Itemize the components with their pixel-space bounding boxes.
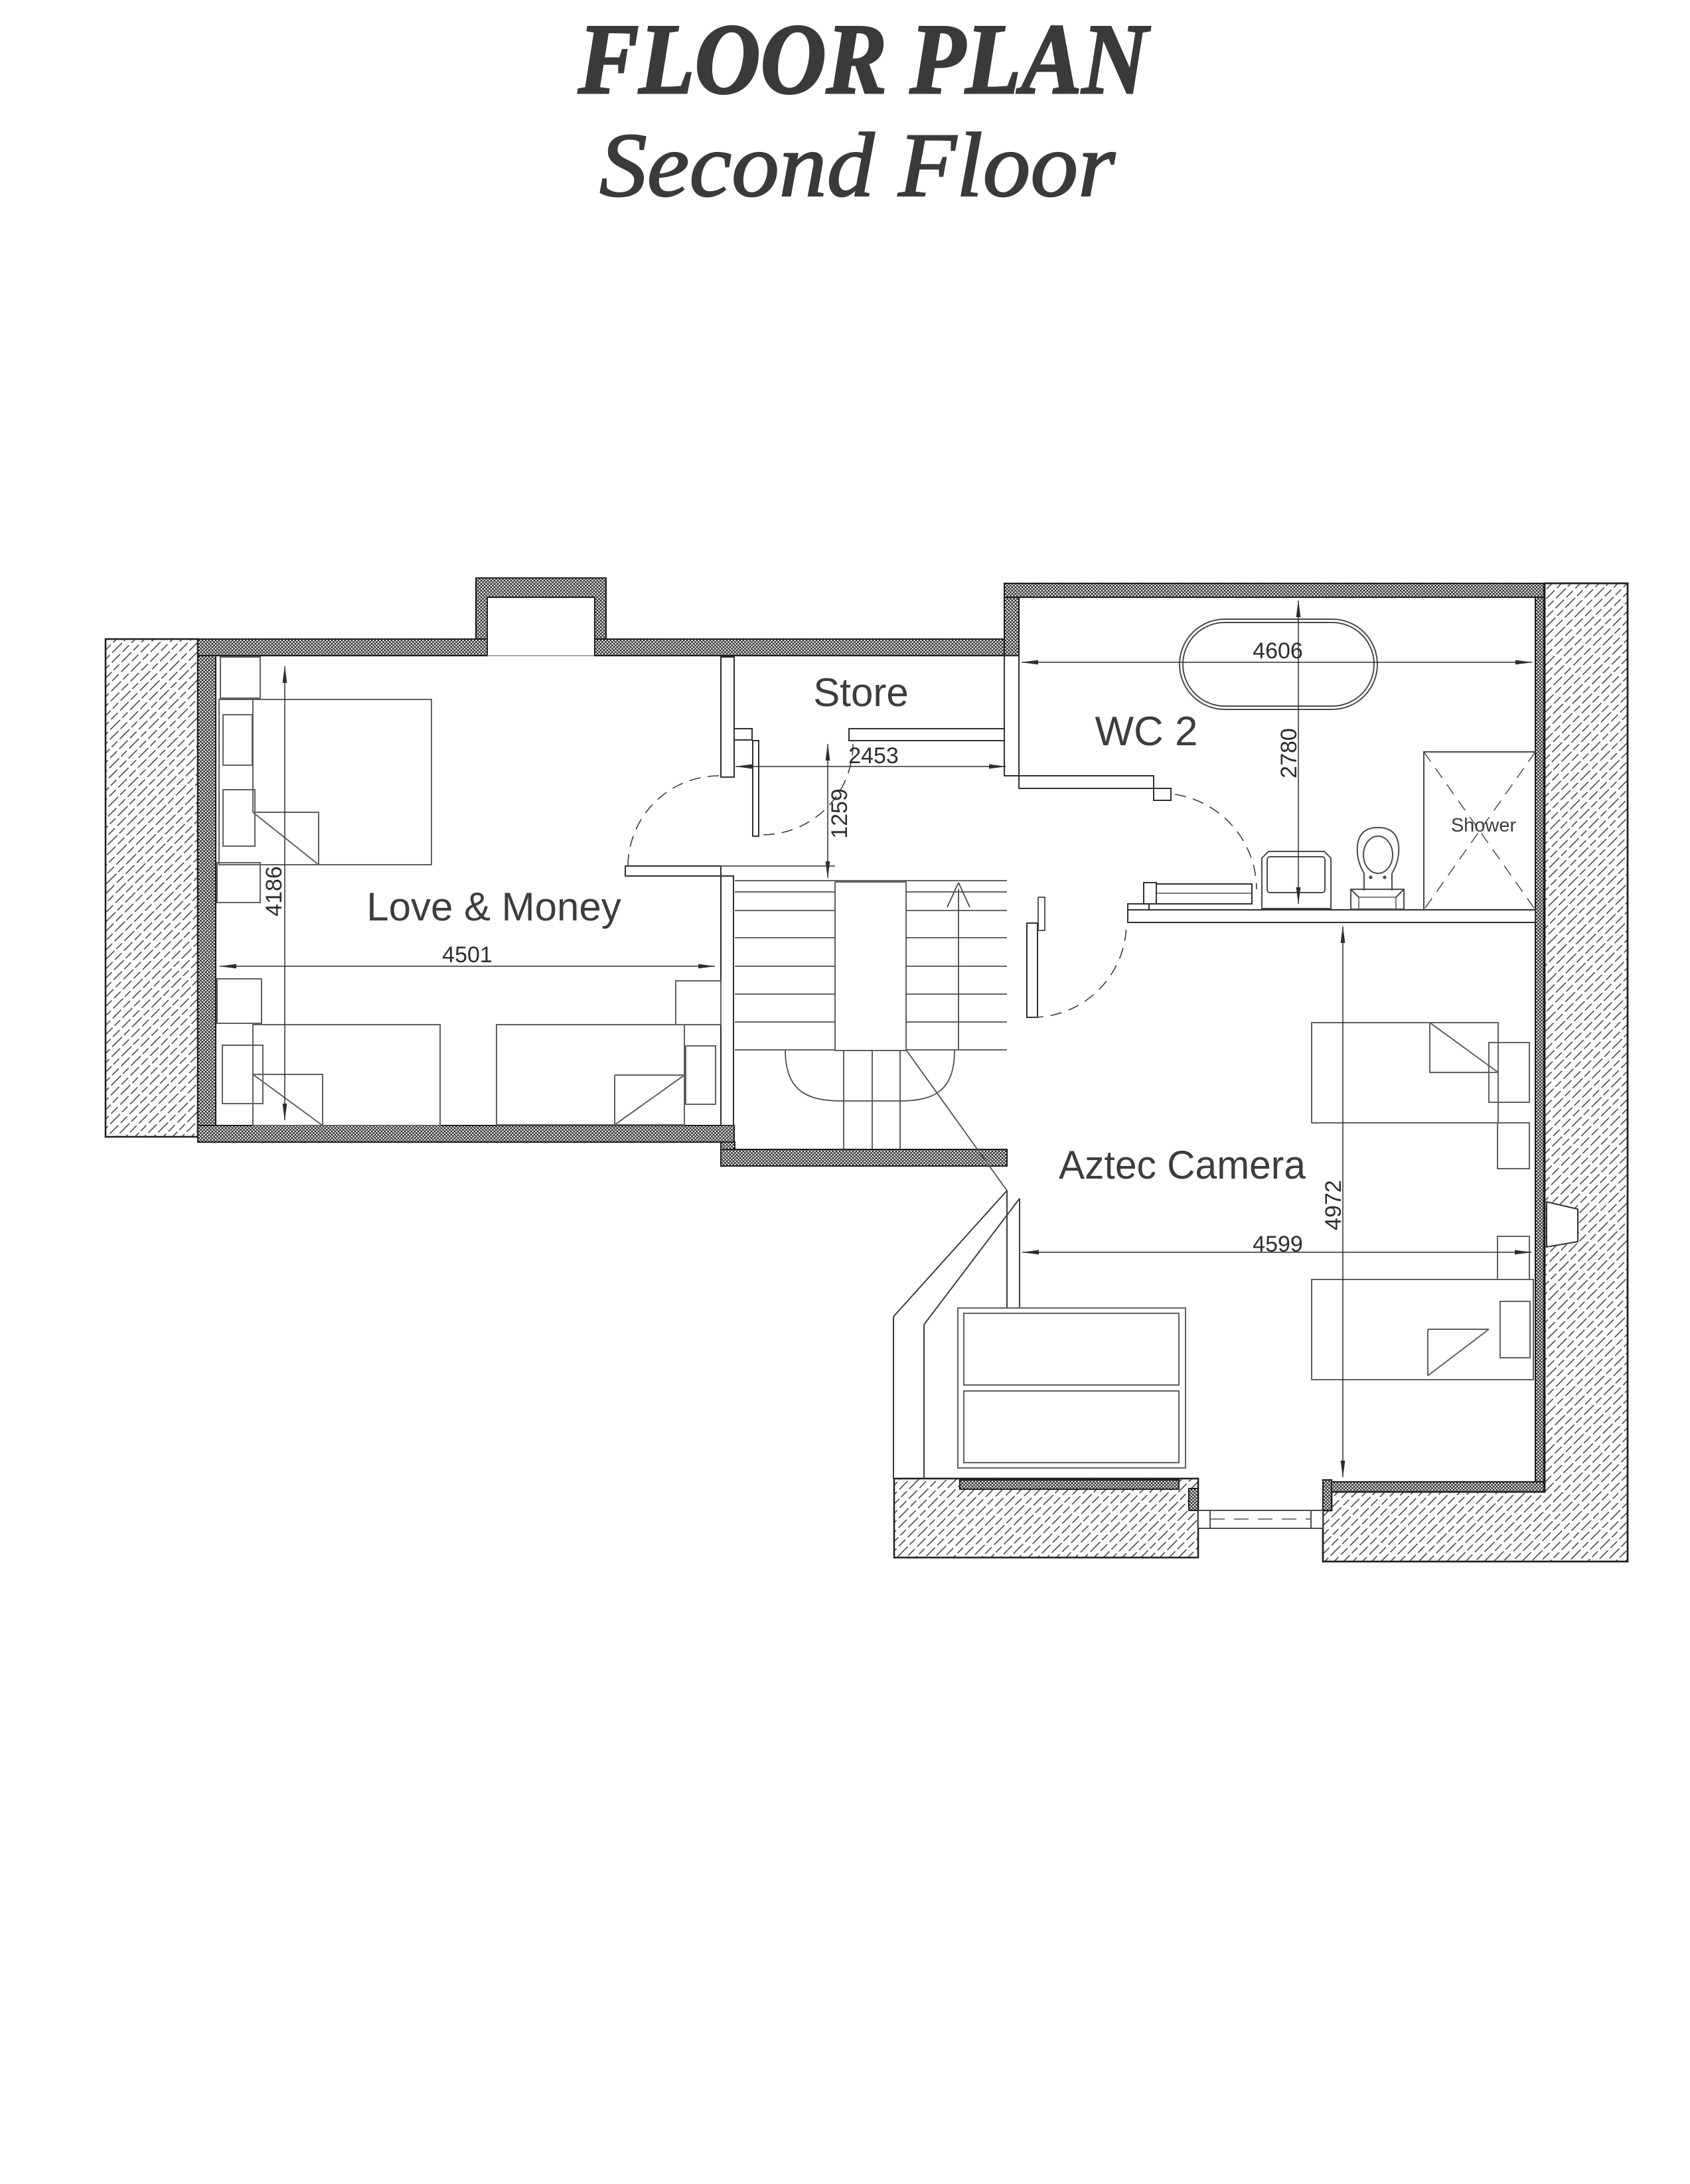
svg-text:2780: 2780: [1276, 728, 1302, 778]
svg-text:1259: 1259: [827, 788, 852, 839]
svg-text:4501: 4501: [442, 942, 493, 968]
svg-text:4599: 4599: [1253, 1232, 1303, 1257]
svg-text:4186: 4186: [262, 866, 287, 916]
svg-text:FLOOR PLAN: FLOOR PLAN: [577, 3, 1151, 115]
svg-text:Store: Store: [813, 670, 908, 715]
svg-text:Aztec Camera: Aztec Camera: [1059, 1143, 1306, 1187]
svg-text:4606: 4606: [1253, 638, 1303, 664]
svg-text:WC 2: WC 2: [1095, 709, 1198, 755]
svg-text:Shower: Shower: [1451, 815, 1517, 836]
svg-text:Love & Money: Love & Money: [366, 885, 621, 929]
svg-text:2453: 2453: [848, 743, 899, 768]
svg-text:Second Floor: Second Floor: [599, 114, 1116, 216]
svg-text:4972: 4972: [1321, 1180, 1346, 1230]
